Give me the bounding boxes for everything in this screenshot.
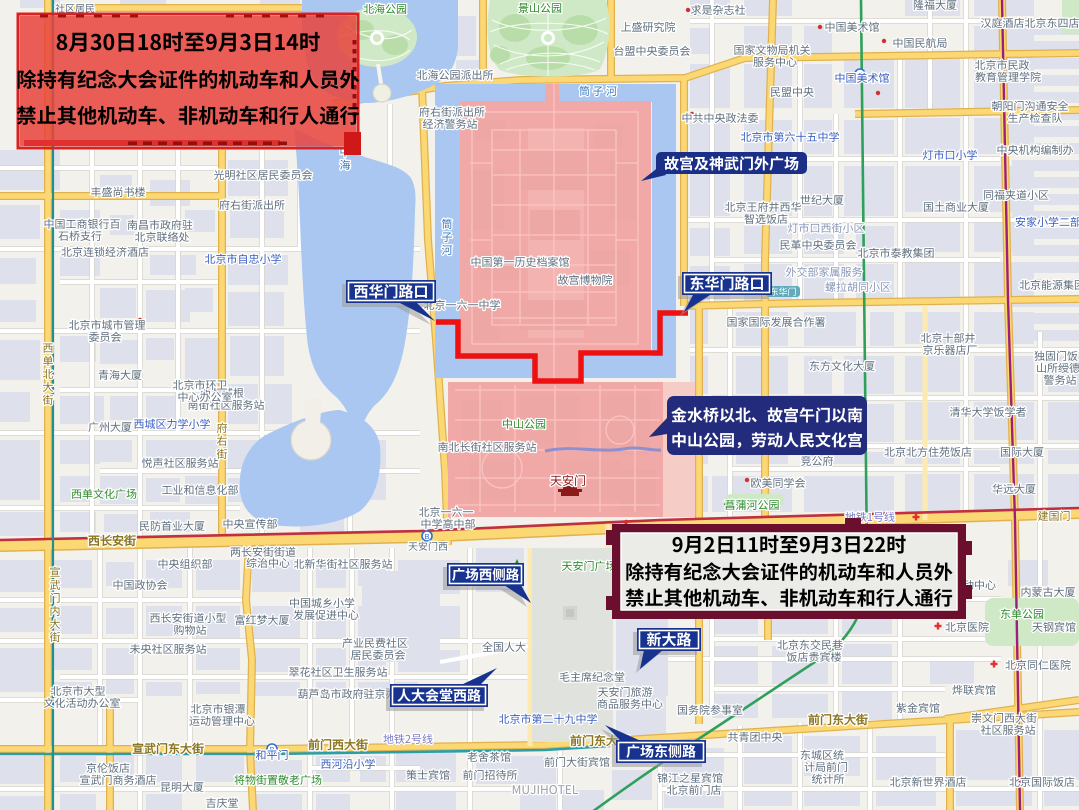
svg-text:前门招待所: 前门招待所 — [463, 767, 518, 783]
svg-text:全国人大: 全国人大 — [482, 639, 526, 655]
svg-text:府右街派出所: 府右街派出所 — [219, 197, 285, 213]
svg-text:北京市泰教集团: 北京市泰教集团 — [858, 245, 935, 261]
svg-text:经济警务站: 经济警务站 — [423, 116, 478, 132]
svg-text:北京同仁医院: 北京同仁医院 — [1005, 657, 1071, 673]
svg-text:北京市第六十五中学: 北京市第六十五中学 — [741, 129, 840, 145]
svg-text:发展促进中心: 发展促进中心 — [293, 607, 359, 623]
svg-text:购物站: 购物站 — [174, 622, 207, 638]
svg-text:民盟中央: 民盟中央 — [770, 84, 814, 100]
svg-text:金水桥以北、故宫午门以南: 金水桥以北、故宫午门以南 — [671, 402, 863, 426]
svg-text:智选饭店: 智选饭店 — [744, 211, 788, 227]
svg-text:中山公园: 中山公园 — [502, 416, 546, 432]
svg-text:中国民航局: 中国民航局 — [893, 35, 948, 51]
svg-text:中国第一历史档案馆: 中国第一历史档案馆 — [471, 254, 570, 270]
svg-text:富红梦大厦: 富红梦大厦 — [235, 612, 290, 628]
svg-text:MUJIHOTEL: MUJIHOTEL — [512, 781, 579, 798]
svg-text:人大会堂西路: 人大会堂西路 — [397, 686, 481, 706]
svg-text:未央社区服务站: 未央社区服务站 — [130, 641, 207, 657]
svg-text:内蒙古大厦: 内蒙古大厦 — [1021, 584, 1076, 600]
svg-text:除持有纪念大会证件的机动车和人员外: 除持有纪念大会证件的机动车和人员外 — [625, 557, 953, 585]
svg-text:北京能源集团: 北京能源集团 — [1019, 277, 1079, 293]
svg-text:8月30日18时至9月3日14时: 8月30日18时至9月3日14时 — [56, 26, 321, 57]
svg-text:前门西大街: 前门西大街 — [308, 736, 368, 753]
svg-text:西华门路口: 西华门路口 — [353, 281, 428, 302]
svg-text:北京医院: 北京医院 — [945, 619, 989, 635]
svg-text:华远大厦: 华远大厦 — [992, 481, 1036, 497]
svg-text:西单文化广场: 西单文化广场 — [71, 486, 137, 502]
svg-text:广场东侧路: 广场东侧路 — [626, 742, 696, 762]
svg-text:统计所: 统计所 — [812, 771, 845, 787]
svg-text:委员会: 委员会 — [89, 329, 122, 345]
svg-text:汉庭酒店北京东四店: 汉庭酒店北京东四店 — [981, 15, 1079, 31]
svg-text:中国美术馆: 中国美术馆 — [825, 19, 880, 35]
svg-text:综治中心: 综治中心 — [246, 555, 290, 571]
svg-text:前门东大街: 前门东大街 — [808, 711, 868, 728]
svg-text:街: 街 — [43, 392, 54, 408]
svg-text:灯市口小学: 灯市口小学 — [923, 147, 978, 163]
svg-text:9月2日11时至9月3日22时: 9月2日11时至9月3日22时 — [672, 529, 906, 558]
svg-text:外交部家属服务: 外交部家属服务 — [786, 264, 863, 280]
svg-text:共青团中央: 共青团中央 — [728, 729, 783, 745]
svg-text:求是杂志社: 求是杂志社 — [691, 2, 746, 18]
svg-text:灯市口西街小区: 灯市口西街小区 — [788, 220, 865, 236]
svg-text:西长安街: 西长安街 — [88, 532, 136, 549]
svg-text:天安门广场: 天安门广场 — [562, 558, 617, 574]
svg-text:北海公园派出所: 北海公园派出所 — [417, 67, 494, 83]
svg-text:河: 河 — [442, 242, 453, 258]
svg-text:教育管理学院: 教育管理学院 — [975, 69, 1041, 85]
svg-text:禁止其他机动车、非机动车和行人通行: 禁止其他机动车、非机动车和行人通行 — [625, 583, 953, 611]
svg-text:北新华街社区服务站: 北新华街社区服务站 — [294, 556, 393, 572]
svg-text:天安门: 天安门 — [550, 472, 586, 489]
svg-text:昆明大厦: 昆明大厦 — [160, 779, 204, 795]
svg-text:海: 海 — [340, 157, 351, 173]
svg-text:中央机构编制办: 中央机构编制办 — [997, 142, 1074, 158]
svg-text:菖蒲河公园: 菖蒲河公园 — [725, 497, 780, 513]
svg-text:吉庆堂: 吉庆堂 — [206, 795, 239, 810]
svg-text:中学高中部: 中学高中部 — [421, 516, 476, 532]
svg-text:文化活动办公室: 文化活动办公室 — [44, 695, 121, 711]
svg-text:服务中心: 服务中心 — [753, 54, 797, 70]
svg-text:中国美术馆: 中国美术馆 — [835, 70, 890, 86]
svg-text:北海公园: 北海公园 — [363, 1, 407, 17]
svg-text:北京市自忠小学: 北京市自忠小学 — [205, 251, 282, 267]
svg-text:和平门: 和平门 — [256, 747, 289, 763]
svg-text:故宫及神武门外广场: 故宫及神武门外广场 — [664, 153, 799, 174]
svg-text:北京市第二十九中学: 北京市第二十九中学 — [499, 711, 598, 727]
svg-text:南北长街社区服务站: 南北长街社区服务站 — [438, 439, 537, 455]
svg-text:毛主席纪念堂: 毛主席纪念堂 — [559, 669, 625, 685]
svg-text:京乐器店厂: 京乐器店厂 — [923, 342, 978, 358]
svg-text:北京新世界酒店: 北京新世界酒店 — [890, 774, 967, 790]
svg-text:街: 街 — [50, 629, 61, 645]
svg-text:北京北方住苑饭店: 北京北方住苑饭店 — [884, 444, 972, 460]
svg-text:民防首业大厦: 民防首业大厦 — [139, 518, 205, 534]
svg-text:宣武门商务酒店: 宣武门商务酒店 — [80, 772, 157, 788]
svg-text:国家国际发展合作署: 国家国际发展合作署 — [727, 314, 826, 330]
svg-text:中国政协会: 中国政协会 — [113, 577, 168, 593]
svg-text:中央组织部: 中央组织部 — [158, 556, 213, 572]
svg-text:北京前门店: 北京前门店 — [667, 782, 722, 798]
svg-text:同福夹道小区: 同福夹道小区 — [983, 187, 1049, 203]
svg-text:社区服务站: 社区服务站 — [981, 722, 1036, 738]
svg-text:民革中央委员会: 民革中央委员会 — [780, 237, 857, 253]
svg-text:建国门: 建国门 — [1038, 508, 1071, 524]
svg-text:西河沿小学: 西河沿小学 — [321, 756, 376, 772]
svg-text:商品服务中心: 商品服务中心 — [597, 696, 663, 712]
svg-text:北京联络处: 北京联络处 — [135, 229, 190, 245]
svg-text:清华大学饭学者: 清华大学饭学者 — [950, 404, 1027, 420]
svg-text:葫芦岛市政府驻京办: 葫芦岛市政府驻京办 — [298, 686, 397, 702]
svg-text:上盛研究院: 上盛研究院 — [621, 19, 676, 35]
svg-text:将物街置敬老广场: 将物街置敬老广场 — [234, 772, 322, 788]
svg-text:悦声社区服务站: 悦声社区服务站 — [142, 455, 219, 471]
svg-text:运动管理中心: 运动管理中心 — [189, 713, 255, 729]
svg-text:国际大厦: 国际大厦 — [1000, 444, 1044, 460]
svg-text:广州大厦: 广州大厦 — [88, 419, 132, 435]
svg-text:光明社区居民委员会: 光明社区居民委员会 — [214, 167, 313, 183]
svg-text:宣武门东大街: 宣武门东大街 — [132, 740, 204, 757]
svg-text:老舍茶馆: 老舍茶馆 — [467, 749, 511, 765]
svg-text:街: 街 — [217, 446, 228, 462]
svg-text:紫金宾馆: 紫金宾馆 — [896, 700, 940, 716]
svg-text:天安门西: 天安门西 — [408, 538, 448, 553]
svg-text:警务站: 警务站 — [1044, 372, 1077, 388]
svg-text:东华门路口: 东华门路口 — [689, 273, 764, 294]
svg-text:工业和信息化部: 工业和信息化部 — [162, 482, 239, 498]
svg-text:竞公府: 竞公府 — [801, 453, 834, 469]
svg-text:前门大街宾馆: 前门大街宾馆 — [544, 754, 610, 770]
svg-text:禁止其他机动车、非机动车和行人通行: 禁止其他机动车、非机动车和行人通行 — [16, 100, 359, 129]
svg-text:除持有纪念大会证件的机动车和人员外: 除持有纪念大会证件的机动车和人员外 — [16, 64, 359, 93]
svg-text:东华门: 东华门 — [769, 285, 796, 298]
svg-text:策士宾馆: 策士宾馆 — [406, 767, 450, 783]
svg-text:世纪大厦: 世纪大厦 — [800, 192, 844, 208]
svg-text:烨联宾馆: 烨联宾馆 — [952, 682, 996, 698]
svg-text:居民委员会: 居民委员会 — [351, 647, 406, 663]
svg-text:安家小学二部: 安家小学二部 — [1015, 214, 1079, 230]
svg-text:翠花社区卫生服务站: 翠花社区卫生服务站 — [289, 664, 388, 680]
svg-text:筒 子 河: 筒 子 河 — [579, 83, 617, 99]
svg-text:新大路: 新大路 — [646, 629, 691, 650]
svg-text:青海大厦: 青海大厦 — [98, 367, 142, 383]
svg-text:螺拉胡同小区: 螺拉胡同小区 — [825, 279, 891, 295]
svg-text:西城区力学小学: 西城区力学小学 — [134, 416, 211, 432]
svg-text:生产检查队: 生产检查队 — [1008, 110, 1063, 126]
svg-text:台盟中央委员会: 台盟中央委员会 — [614, 43, 691, 59]
svg-text:故宫博物院: 故宫博物院 — [558, 272, 613, 288]
svg-text:国土商业大厦: 国土商业大厦 — [923, 199, 989, 215]
svg-text:北京国际饭店: 北京国际饭店 — [1009, 774, 1075, 790]
svg-text:饭店贵宾楼: 饭店贵宾楼 — [787, 649, 842, 665]
svg-text:景山公园: 景山公园 — [518, 0, 562, 16]
svg-text:石桥支行: 石桥支行 — [58, 228, 102, 244]
svg-text:地铁2号线: 地铁2号线 — [383, 731, 433, 747]
svg-text:隆福大厦: 隆福大厦 — [913, 0, 957, 13]
svg-text:天钢宾馆: 天钢宾馆 — [1032, 619, 1076, 635]
svg-text:中共中央政法委: 中共中央政法委 — [682, 110, 759, 126]
svg-text:东方文化大厦: 东方文化大厦 — [809, 358, 875, 374]
svg-text:中央宣传部: 中央宣传部 — [223, 516, 278, 532]
svg-text:欧美同学会: 欧美同学会 — [751, 475, 806, 491]
svg-text:北京连锁经济酒店: 北京连锁经济酒店 — [61, 244, 149, 260]
svg-text:中山公园，劳动人民文化宫: 中山公园，劳动人民文化宫 — [671, 427, 863, 451]
svg-text:丰盛尚书楼: 丰盛尚书楼 — [91, 184, 146, 200]
svg-text:中心办公室: 中心办公室 — [178, 389, 233, 405]
svg-text:广场西侧路: 广场西侧路 — [452, 563, 520, 583]
svg-text:国务院参事室: 国务院参事室 — [677, 702, 743, 718]
